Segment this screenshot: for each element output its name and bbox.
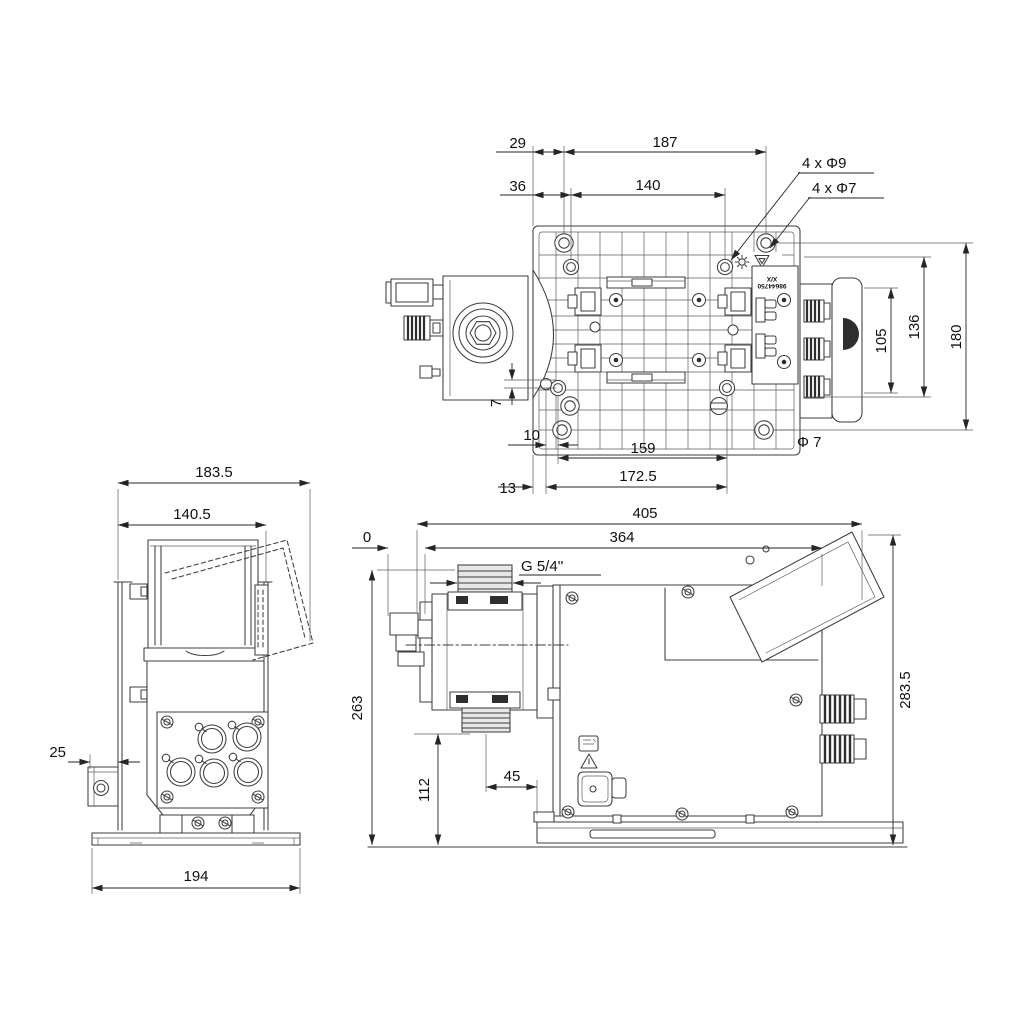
screw-pad	[778, 356, 791, 369]
screw	[790, 694, 802, 706]
dim-405: 405	[632, 505, 657, 522]
connection-plate	[157, 712, 268, 808]
screw	[192, 817, 204, 829]
drawing-canvas: X/X 98644750	[0, 0, 1024, 1024]
dim-283-5: 283.5	[897, 671, 914, 709]
dim-10: 10	[523, 427, 540, 444]
molded-xx-text: X/X	[766, 275, 777, 282]
dim-194: 194	[183, 868, 208, 885]
dim-172-5: 172.5	[619, 468, 657, 485]
dim-187: 187	[652, 134, 677, 151]
discharge-connection	[448, 565, 522, 610]
knob-housing	[832, 278, 862, 422]
screw	[566, 592, 578, 604]
striped-knob[interactable]	[804, 300, 830, 322]
slotted-hole	[711, 398, 728, 415]
dim-364: 364	[609, 529, 634, 546]
mounting-hole-phi9	[555, 234, 573, 252]
striped-knob[interactable]	[804, 338, 830, 360]
mounting-hole-phi9	[757, 234, 775, 252]
top-view: X/X 98644750	[386, 134, 973, 497]
cable-gland-port[interactable]	[167, 758, 195, 786]
screw-pad	[693, 354, 706, 367]
mounting-hole-phi7	[717, 259, 732, 274]
screw	[161, 716, 173, 728]
screw	[786, 806, 798, 818]
dim-7: 7	[488, 399, 505, 407]
front-base-plate	[92, 833, 300, 845]
datum-0: 0	[363, 529, 371, 546]
side-base-plate	[368, 812, 907, 847]
dim-36: 36	[509, 178, 526, 195]
screw	[562, 806, 574, 818]
dim-112: 112	[416, 778, 433, 802]
screw	[161, 791, 173, 803]
mounting-hole-phi7	[563, 259, 578, 274]
pump-head-top	[386, 276, 528, 400]
vent-knob-top[interactable]	[404, 316, 443, 340]
dim-13: 13	[499, 480, 516, 497]
dim-140: 140	[635, 177, 660, 194]
mounting-hole-phi9	[553, 421, 571, 439]
screw-pad	[693, 294, 706, 307]
cable-gland-cap	[386, 282, 391, 303]
dim-29: 29	[509, 135, 526, 152]
suction-connection	[450, 692, 520, 732]
screw-pad	[778, 294, 791, 307]
screw	[676, 808, 688, 820]
cable-gland-port[interactable]	[234, 758, 262, 786]
screw	[252, 791, 264, 803]
screw	[682, 586, 694, 598]
dim-25: 25	[49, 744, 66, 761]
hole	[561, 397, 579, 415]
screw	[219, 817, 231, 829]
wall-bracket	[88, 767, 118, 806]
label-phi7: Φ 7	[797, 434, 821, 451]
dim-183-5: 183.5	[195, 464, 233, 481]
screw-pad	[610, 294, 623, 307]
cable-gland-port[interactable]	[233, 723, 261, 751]
striped-knob[interactable]	[804, 376, 830, 398]
cable-gland-port[interactable]	[200, 759, 228, 787]
dim-263: 263	[349, 695, 366, 720]
connector-knobs-top	[800, 278, 862, 422]
side-knob[interactable]	[820, 695, 866, 723]
hole-label-4x-phi9: 4 x Φ9	[802, 155, 847, 172]
dim-45: 45	[504, 768, 521, 785]
screw-pad	[610, 354, 623, 367]
front-view: 183.5 140.5 25 194	[49, 464, 313, 894]
label-thread-g54: G 5/4''	[521, 558, 564, 575]
side-view: 405 364 0 G 5/4'' 263 112 45 283.5	[349, 505, 914, 847]
dim-180: 180	[948, 324, 965, 349]
pump-dimensional-drawing: X/X 98644750	[0, 0, 1024, 1024]
dim-105: 105	[873, 328, 890, 353]
cable-gland-side	[390, 613, 418, 635]
cover-hinge-block	[255, 585, 268, 655]
molded-number-text: 98644750	[757, 282, 786, 289]
dim-136: 136	[906, 314, 923, 339]
mounting-hole-phi9	[755, 421, 773, 439]
dim-140-5: 140.5	[173, 506, 211, 523]
side-knob[interactable]	[820, 735, 866, 763]
mounting-hole-phi7	[719, 380, 734, 395]
dim-159: 159	[630, 440, 655, 457]
hole-label-4x-phi7: 4 x Φ7	[812, 180, 857, 197]
